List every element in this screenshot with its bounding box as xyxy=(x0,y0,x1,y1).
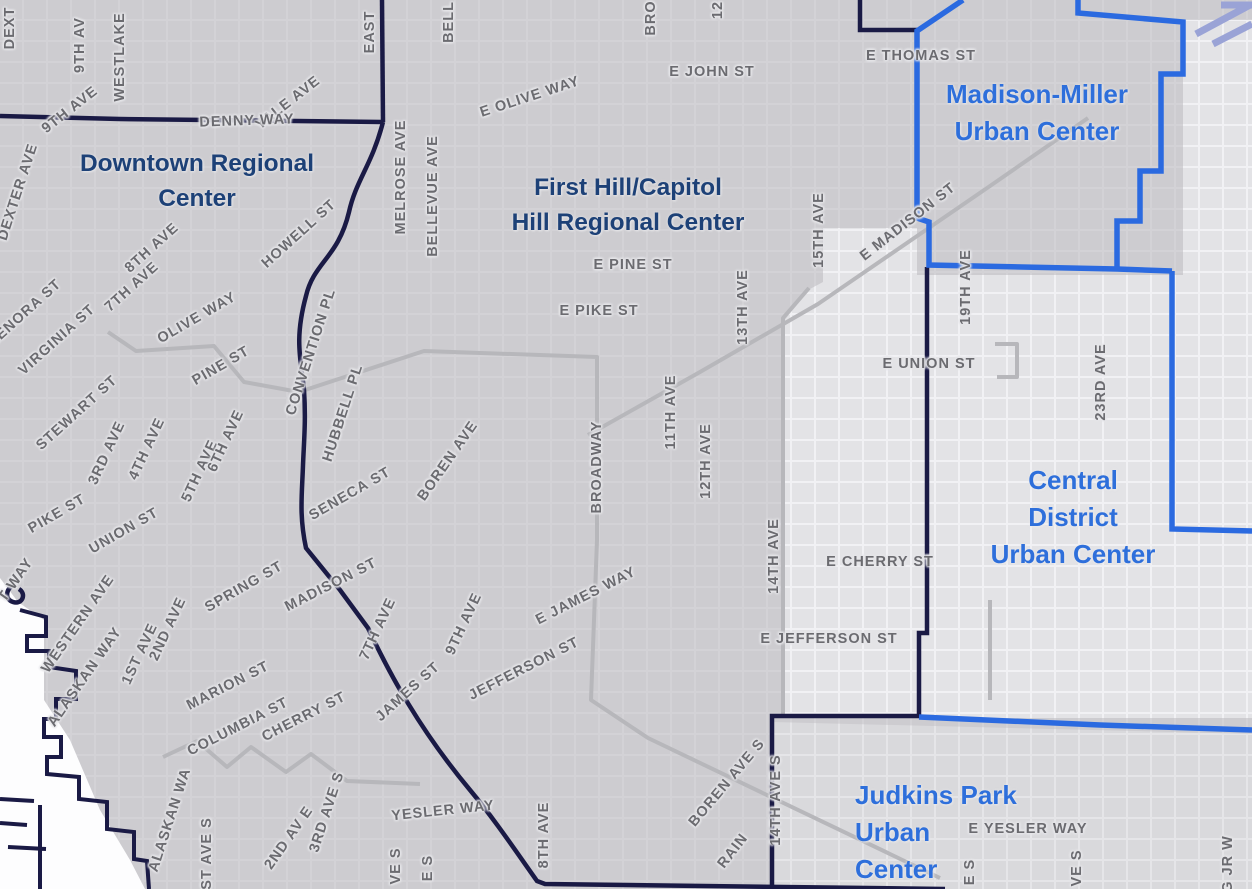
center-label-line: Center xyxy=(80,181,314,216)
center-titles-layer: Downtown RegionalCenterFirst Hill/Capito… xyxy=(0,0,1252,889)
center-label-line: Hill Regional Center xyxy=(512,205,745,240)
center-label-downtown: Downtown RegionalCenter xyxy=(80,146,314,216)
center-label-line: Madison-Miller xyxy=(946,76,1128,113)
center-label-madison-miller: Madison-MillerUrban Center xyxy=(946,76,1128,150)
center-label-line: Downtown Regional xyxy=(80,146,314,181)
center-label-line: Urban xyxy=(855,814,1017,851)
center-label-judkins-park: Judkins ParkUrbanCenter xyxy=(855,777,1017,888)
center-label-line: First Hill/Capitol xyxy=(512,170,745,205)
center-label-line: Urban Center xyxy=(991,536,1156,573)
center-label-line: Urban Center xyxy=(946,113,1128,150)
center-label-first-hill-capitol-hill: First Hill/CapitolHill Regional Center xyxy=(512,170,745,240)
center-label-line: Judkins Park xyxy=(855,777,1017,814)
center-label-line: Center xyxy=(855,851,1017,888)
seattle-centers-map: DEXT9TH AVWESTLAKE9TH AVEDEXTER AVEYALE … xyxy=(0,0,1252,889)
center-label-line: Central xyxy=(991,462,1156,499)
center-label-line: District xyxy=(991,499,1156,536)
center-label-central-district: CentralDistrictUrban Center xyxy=(991,462,1156,573)
